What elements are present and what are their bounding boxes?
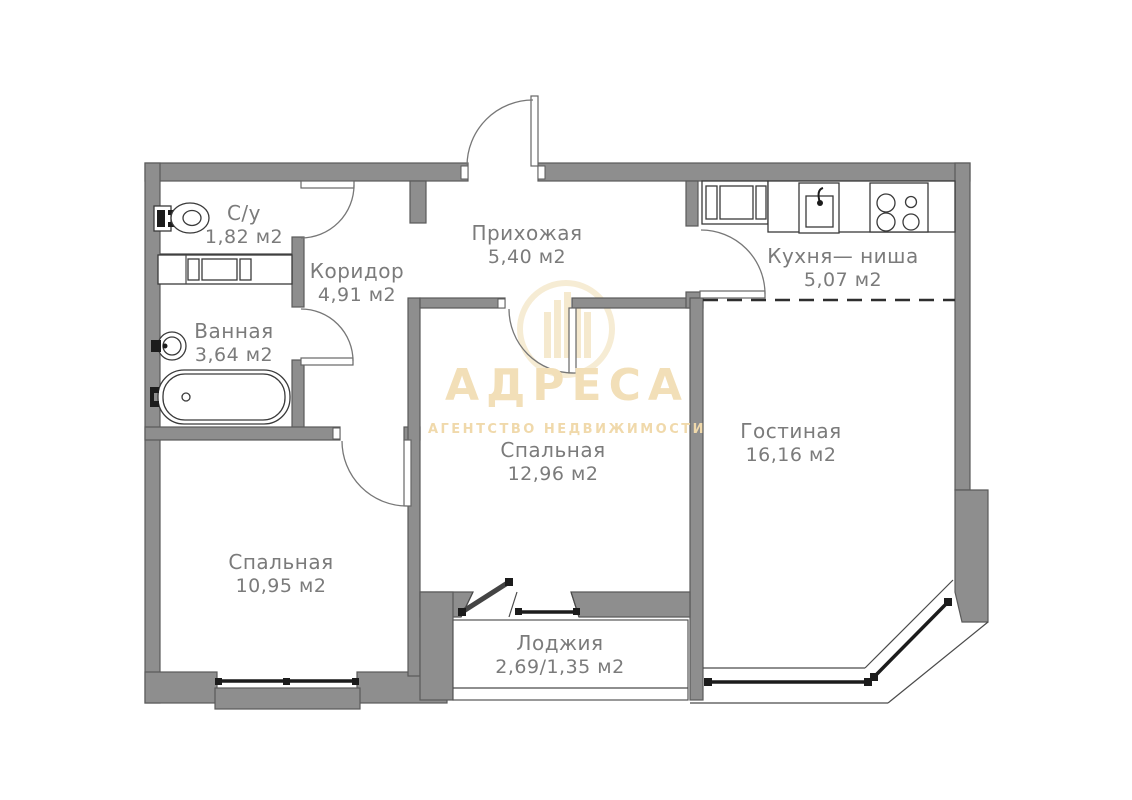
wardrobe-icon: [702, 181, 768, 224]
room-name: Прихожая: [471, 221, 582, 245]
room-name: Спальная: [228, 550, 333, 574]
room-area: 4,91 м2: [310, 283, 404, 307]
room-area: 12,96 м2: [500, 462, 605, 486]
room-label-bathroom: Ванная 3,64 м2: [194, 319, 273, 367]
wc-door: [301, 181, 354, 238]
entrance-door: [461, 96, 545, 179]
room-label-hallway: Прихожая 5,40 м2: [471, 221, 582, 269]
room-label-bedroom-center: Спальная 12,96 м2: [500, 438, 605, 486]
loggia-window: [515, 608, 580, 615]
stove-icon: [870, 183, 928, 232]
room-area: 3,64 м2: [194, 343, 273, 367]
room-area: 16,16 м2: [740, 443, 841, 467]
kitchen-door: [700, 230, 765, 298]
toilet-icon: [154, 203, 209, 233]
bedroom-left-window: [215, 678, 359, 685]
room-label-loggia: Лоджия 2,69/1,35 м2: [495, 631, 624, 679]
room-area: 5,07 м2: [767, 268, 918, 292]
washing-machine-icon: [158, 254, 292, 284]
room-name: Лоджия: [495, 631, 624, 655]
bedroom-left-door: [333, 428, 411, 506]
room-area: 10,95 м2: [228, 574, 333, 598]
living-room-bay-window: [690, 580, 988, 703]
watermark-brand: АДРЕСА: [445, 360, 689, 411]
room-name: Ванная: [194, 319, 273, 343]
room-area: 5,40 м2: [471, 245, 582, 269]
bathtub-icon: [150, 370, 290, 424]
room-label-corridor: Коридор 4,91 м2: [310, 259, 404, 307]
room-area: 2,69/1,35 м2: [495, 655, 624, 679]
watermark-tagline: АГЕНТСТВО НЕДВИЖИМОСТИ: [428, 422, 706, 437]
floorplan-canvas: АДРЕСА АГЕНТСТВО НЕДВИЖИМОСТИ С/у 1,82 м…: [0, 0, 1132, 800]
room-label-living-room: Гостиная 16,16 м2: [740, 419, 841, 467]
bathroom-door: [301, 309, 353, 365]
kitchen-sink-icon: [799, 183, 839, 233]
room-name: С/у: [205, 201, 283, 225]
room-label-wc: С/у 1,82 м2: [205, 201, 283, 249]
room-area: 1,82 м2: [205, 225, 283, 249]
room-label-kitchen-niche: Кухня— ниша 5,07 м2: [767, 244, 918, 292]
room-name: Кухня— ниша: [767, 244, 918, 268]
room-name: Спальная: [500, 438, 605, 462]
room-name: Коридор: [310, 259, 404, 283]
room-name: Гостиная: [740, 419, 841, 443]
room-label-bedroom-left: Спальная 10,95 м2: [228, 550, 333, 598]
